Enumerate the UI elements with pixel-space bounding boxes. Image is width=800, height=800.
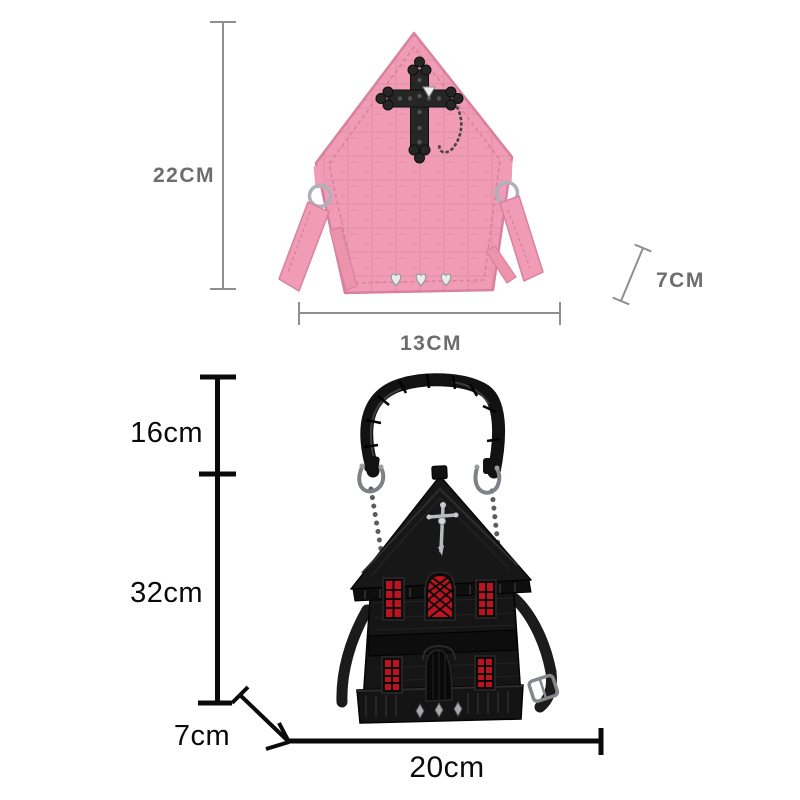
black-bag-body-height-label: 32cm: [118, 579, 203, 608]
black-strap-right: [514, 598, 551, 672]
illustration-layer: [0, 0, 800, 800]
black-bag-width-label: 20cm: [397, 753, 497, 783]
peak-knob: [432, 466, 448, 480]
depth-dim-line: [621, 248, 643, 301]
depth-arrowhead: [266, 742, 289, 749]
chain-left-icon: [371, 489, 382, 556]
black-bag-depth-label: 7cm: [162, 722, 242, 751]
pink-bag-illustration: [279, 33, 543, 293]
strap-left: [279, 202, 329, 291]
bamboo-handle: [364, 374, 500, 474]
pink-bag-height-label: 22CM: [145, 165, 215, 186]
pink-bag-width-label: 13CM: [391, 333, 471, 354]
pink-bag-depth-label: 7CM: [656, 270, 705, 291]
black-bag-illustration: [342, 374, 559, 723]
product-dimensions-image: 22CM 13CM 7CM 16cm 32cm 7cm 20cm: [0, 0, 800, 800]
black-bag-handle-height-label: 16cm: [118, 419, 203, 448]
depth-dim-line: [240, 695, 289, 742]
